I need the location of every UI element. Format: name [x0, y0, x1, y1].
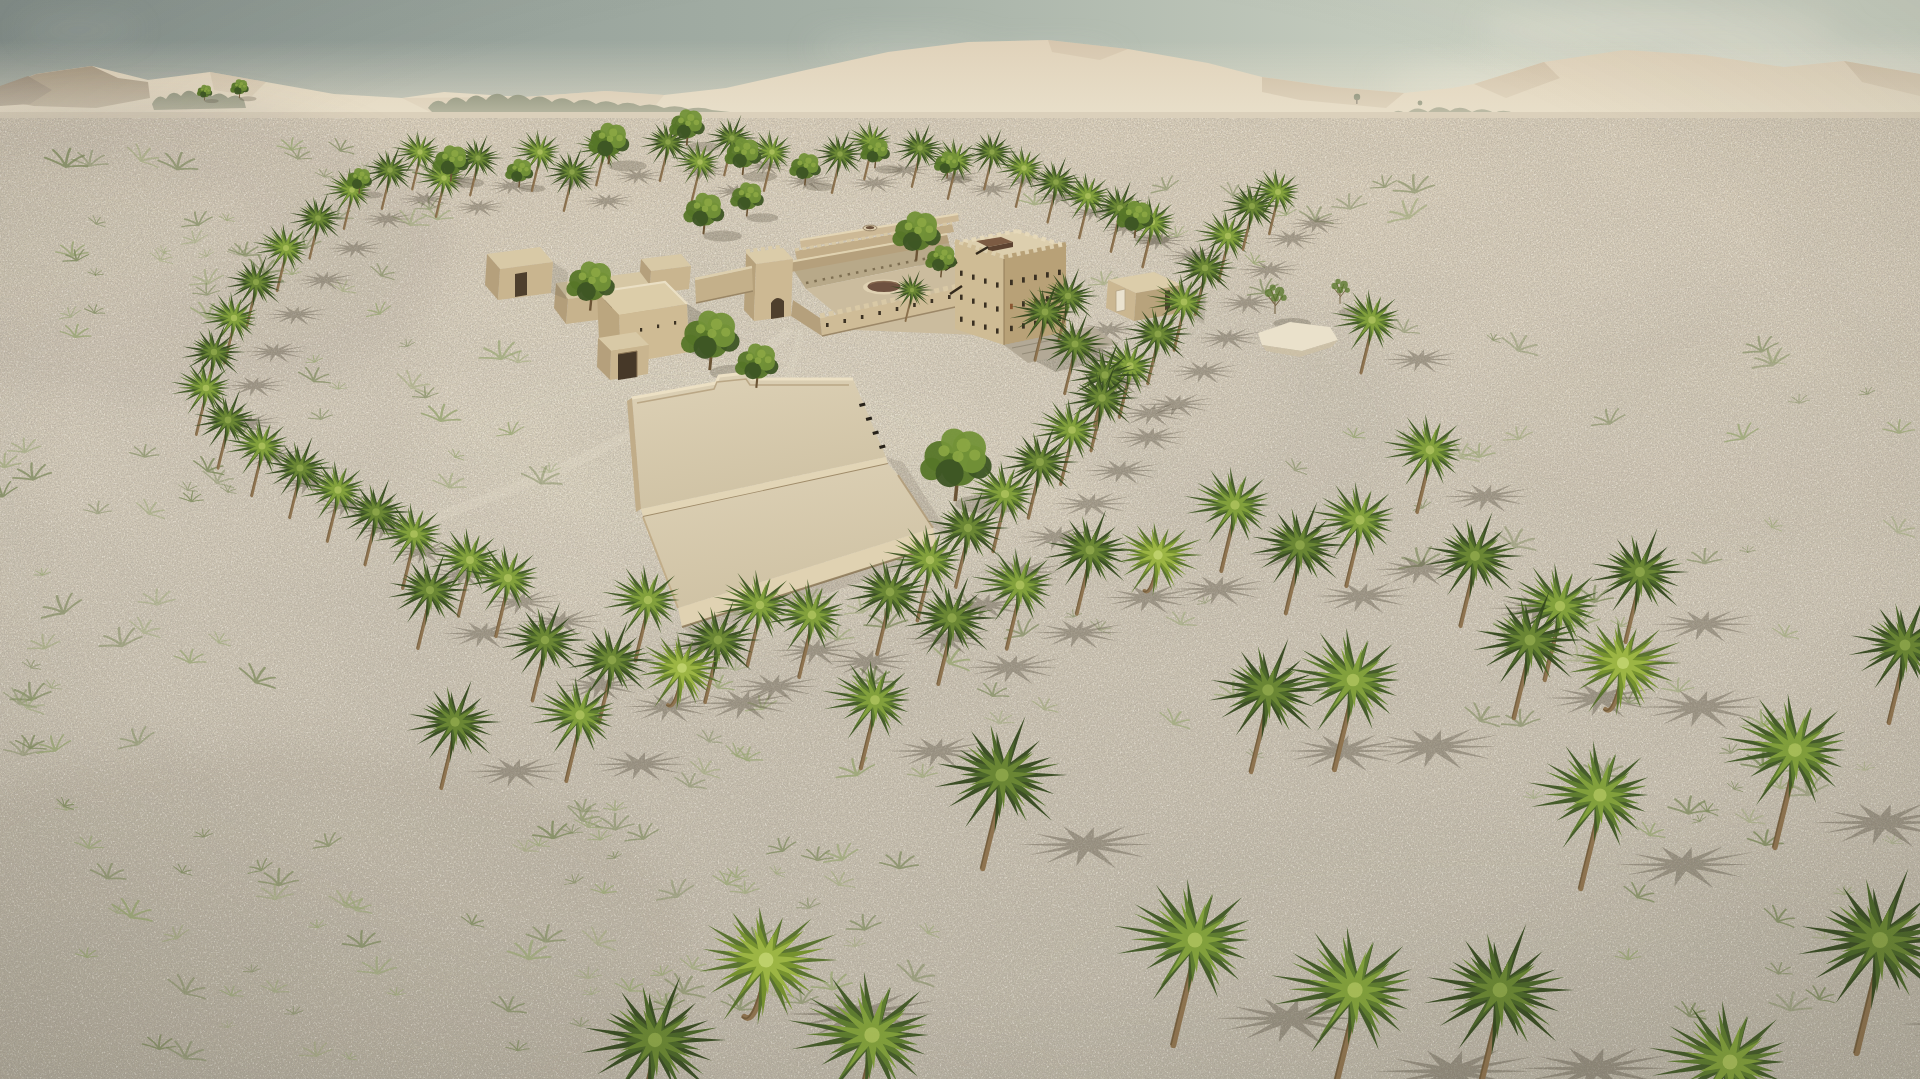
oasis-3d-render — [0, 0, 1920, 1079]
vignette — [0, 0, 1920, 1079]
screenshot-root: Aerial 3D architectural rendering of a s… — [0, 0, 1920, 1079]
